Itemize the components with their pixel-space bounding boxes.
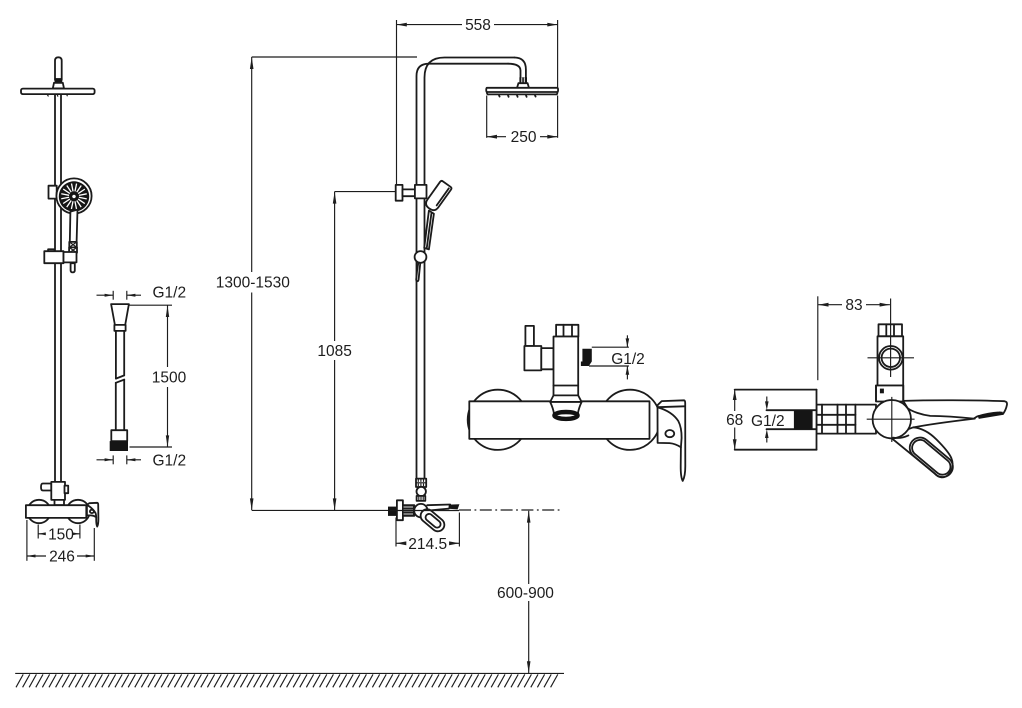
svg-text:214.5: 214.5 (408, 536, 447, 553)
svg-text:83: 83 (845, 297, 862, 314)
svg-text:558: 558 (465, 17, 491, 34)
svg-text:600-900: 600-900 (497, 585, 554, 602)
svg-text:G1/2: G1/2 (153, 452, 187, 469)
svg-text:1300-1530: 1300-1530 (216, 275, 291, 292)
svg-text:246: 246 (49, 549, 75, 566)
svg-text:G1/2: G1/2 (751, 413, 785, 430)
svg-text:G1/2: G1/2 (153, 284, 187, 301)
svg-text:250: 250 (511, 129, 537, 146)
svg-text:68: 68 (726, 412, 743, 429)
svg-text:1500: 1500 (152, 369, 187, 386)
svg-text:G1/2: G1/2 (611, 351, 645, 368)
svg-text:1085: 1085 (317, 343, 351, 360)
svg-text:150: 150 (48, 526, 74, 543)
